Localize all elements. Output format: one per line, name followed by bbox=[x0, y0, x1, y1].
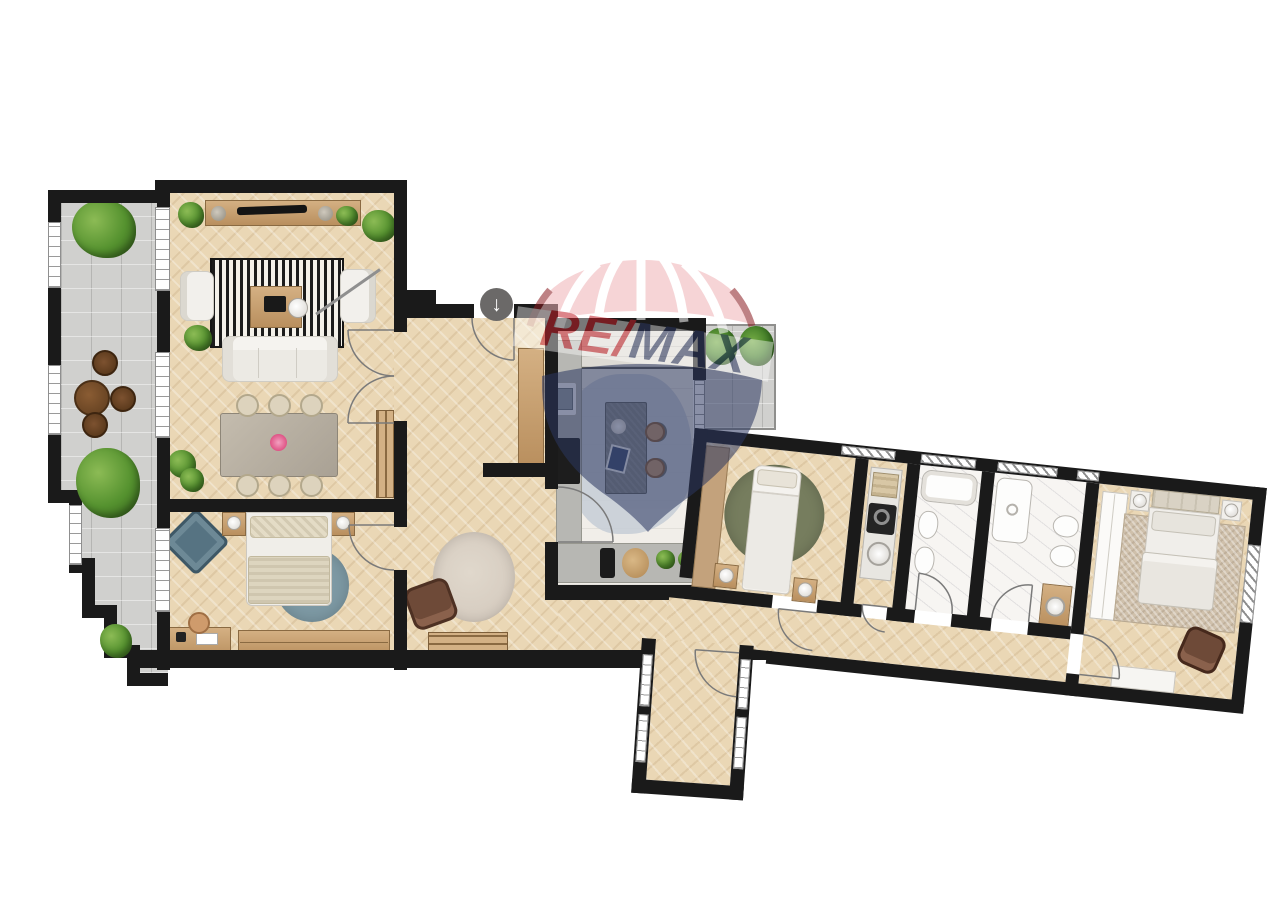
floor-plan: RE/MAX ↓ bbox=[0, 0, 1280, 905]
watermark-group: RE/MAX bbox=[512, 253, 773, 532]
down-arrow-icon: ↓ bbox=[491, 294, 502, 315]
balloon-bottom bbox=[542, 364, 762, 532]
remax-watermark: RE/MAX bbox=[510, 240, 780, 550]
entrance-marker: ↓ bbox=[480, 288, 513, 321]
